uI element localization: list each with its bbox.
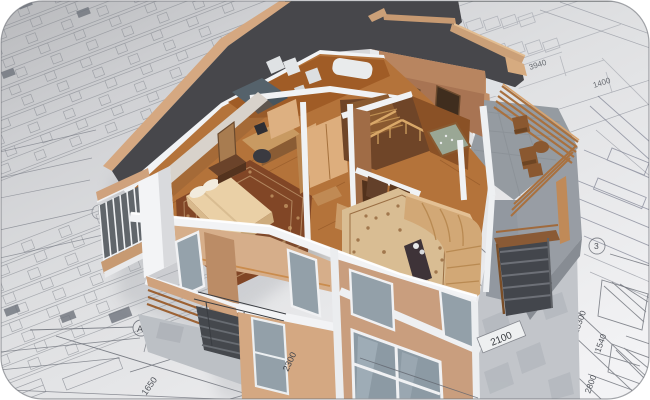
svg-text:3: 3 [594, 241, 599, 251]
